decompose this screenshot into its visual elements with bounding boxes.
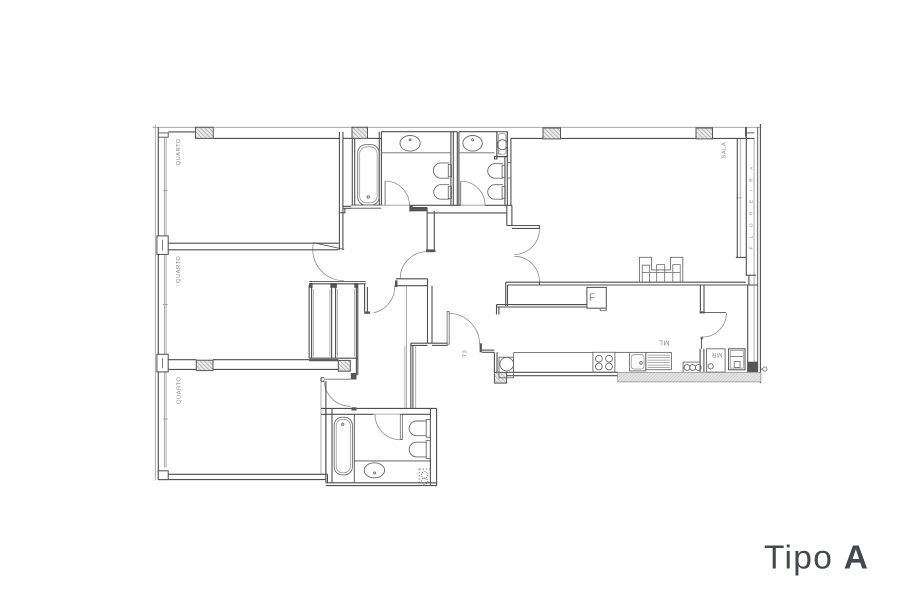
svg-text:SALA: SALA	[722, 142, 728, 159]
svg-text:ESQ: ESQ	[498, 148, 502, 155]
svg-text:QUARTO: QUARTO	[176, 138, 182, 165]
svg-text:Tipo A: Tipo A	[764, 540, 869, 577]
svg-text:ML: ML	[658, 339, 669, 346]
svg-text:MR: MR	[711, 351, 722, 358]
svg-text:F: F	[589, 293, 595, 304]
svg-text:QUARTO: QUARTO	[177, 377, 183, 404]
svg-text:QUARTO: QUARTO	[176, 256, 182, 283]
svg-text:T3: T3	[463, 350, 469, 358]
svg-text:FLOREIRA: FLOREIRA	[748, 158, 754, 249]
